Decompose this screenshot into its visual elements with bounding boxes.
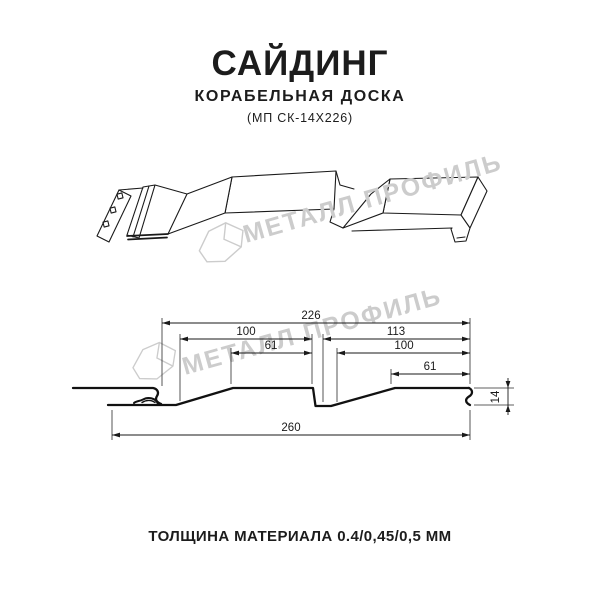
dim-label-260: 260 [281,422,300,434]
nail-strip [97,190,131,242]
dim-label-61-left: 61 [265,340,278,352]
metall-profil-logo-icon [131,341,178,381]
product-drawing-page: САЙДИНГ КОРАБЕЛЬНАЯ ДОСКА (МП СК-14Х226) [0,0,600,600]
dim-label-100-right: 100 [394,340,413,352]
technical-drawing-canvas: МЕТАЛЛ ПРОФИЛЬ МЕТАЛЛ ПРОФИЛЬ [0,0,600,600]
dim-label-61-right: 61 [424,361,437,373]
dim-label-226: 226 [301,310,320,322]
profile-outline [73,388,472,406]
metall-profil-logo-icon [196,221,247,265]
dim-label-113: 113 [387,326,405,338]
dim-label-14: 14 [490,390,502,403]
material-thickness-caption: ТОЛЩИНА МАТЕРИАЛА 0.4/0,45/0,5 ММ [0,528,600,545]
dim-label-100-left: 100 [236,326,255,338]
